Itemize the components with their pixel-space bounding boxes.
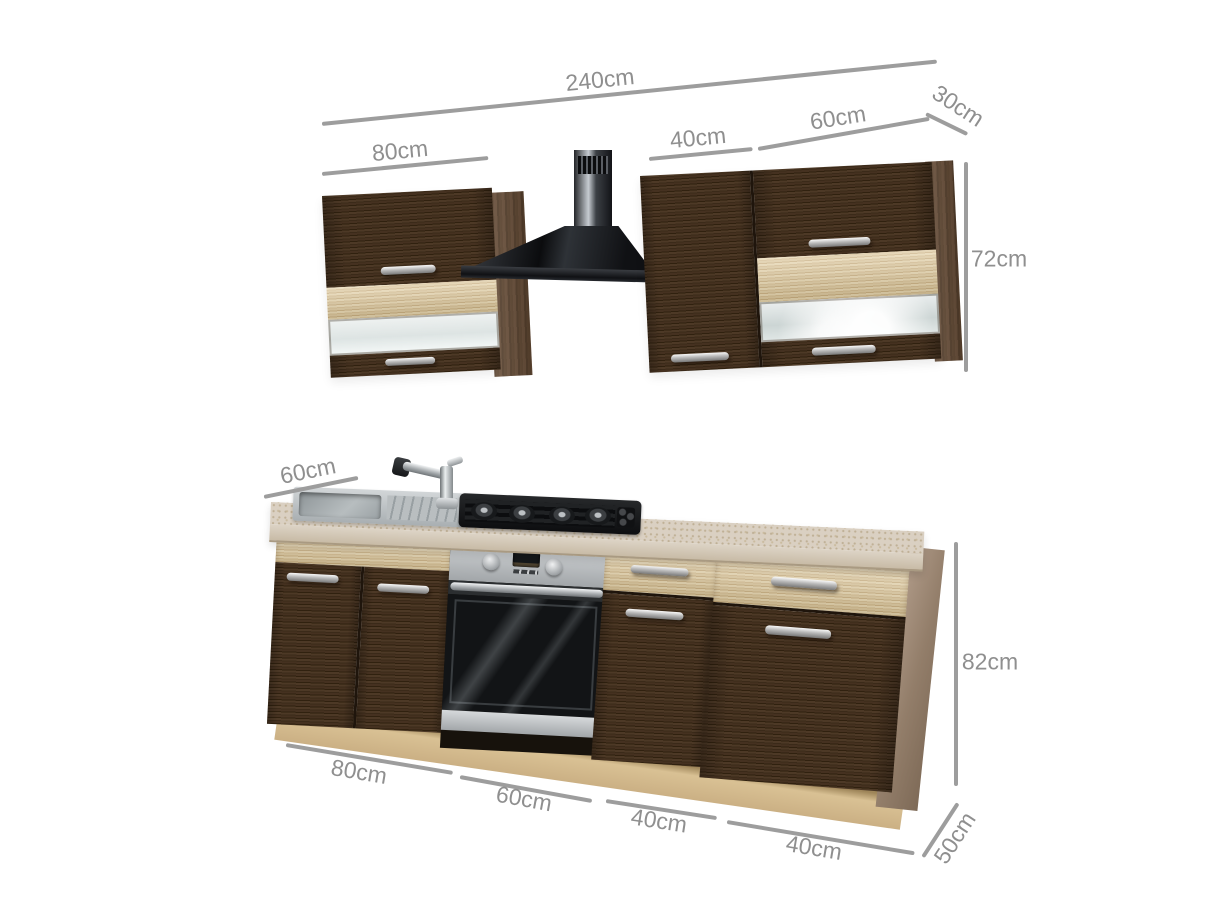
dim-label-base-section1: 80cm bbox=[329, 756, 388, 788]
wall-cabinet-40-door-handle bbox=[671, 352, 729, 363]
oven-knob-right bbox=[545, 558, 563, 576]
wall-cabinet-60-bottom-handle bbox=[812, 345, 876, 356]
dim-label-wall-height: 72cm bbox=[971, 248, 1027, 271]
dim-label-wall-left-width: 80cm bbox=[371, 137, 429, 165]
wall-cabinet-60-door bbox=[753, 162, 936, 259]
dim-line-base-height bbox=[954, 542, 958, 786]
dim-label-base-depth: 50cm bbox=[930, 808, 980, 868]
base-cabinet-40-a-drawer-handle bbox=[630, 565, 688, 577]
dim-line-wall-height bbox=[964, 162, 968, 372]
oven-knob-left bbox=[482, 553, 500, 571]
base-cabinet-80-door-left bbox=[267, 562, 361, 728]
base-cabinet-40-a bbox=[591, 548, 718, 767]
faucet-base bbox=[436, 498, 458, 510]
dim-label-base-section2: 60cm bbox=[494, 783, 553, 816]
dim-label-wall-mid-width: 40cm bbox=[669, 124, 727, 152]
base-cabinet-80-door-right-handle bbox=[377, 583, 429, 594]
wall-cabinet-80-bottom-handle bbox=[385, 357, 435, 366]
dim-label-base-section4: 40cm bbox=[784, 832, 843, 864]
wall-cabinet-40-door bbox=[640, 171, 759, 373]
kitchen-set-dimension-diagram: 240cm 80cm 40cm 60cm 30cm 72cm 60cm 82cm… bbox=[0, 0, 1213, 909]
base-cabinet-80-door-right bbox=[356, 567, 450, 733]
sink-bowl bbox=[299, 492, 382, 519]
base-cabinet-80-door-left-handle bbox=[286, 573, 338, 584]
base-cabinet-40-b-drawer-handle bbox=[771, 576, 838, 590]
dim-label-wall-depth: 30cm bbox=[928, 81, 988, 131]
faucet-body bbox=[440, 466, 453, 502]
wall-cabinet-80-door-handle bbox=[381, 265, 436, 276]
oven-housing-60 bbox=[440, 536, 608, 756]
oven-door-glass bbox=[442, 594, 605, 718]
base-cabinet-40-b-door bbox=[699, 605, 905, 793]
wall-cabinet-40-60 bbox=[640, 162, 941, 373]
hob-control-knobs bbox=[617, 507, 636, 528]
wall-cabinet-60-door-handle bbox=[808, 237, 870, 248]
wall-cabinet-80 bbox=[322, 188, 501, 378]
base-cabinet-40-b bbox=[699, 554, 909, 792]
base-cabinet-40-a-door-handle bbox=[625, 609, 683, 621]
base-cabinet-40-b-door-handle bbox=[765, 625, 832, 639]
base-cabinet-40-a-door bbox=[591, 593, 714, 767]
base-cabinet-80 bbox=[267, 532, 452, 733]
dim-label-base-section3: 40cm bbox=[629, 805, 688, 836]
oven-display-buttons bbox=[513, 569, 538, 574]
dim-label-base-height: 82cm bbox=[962, 651, 1018, 674]
cooker-hood-vent-grille bbox=[578, 156, 608, 174]
